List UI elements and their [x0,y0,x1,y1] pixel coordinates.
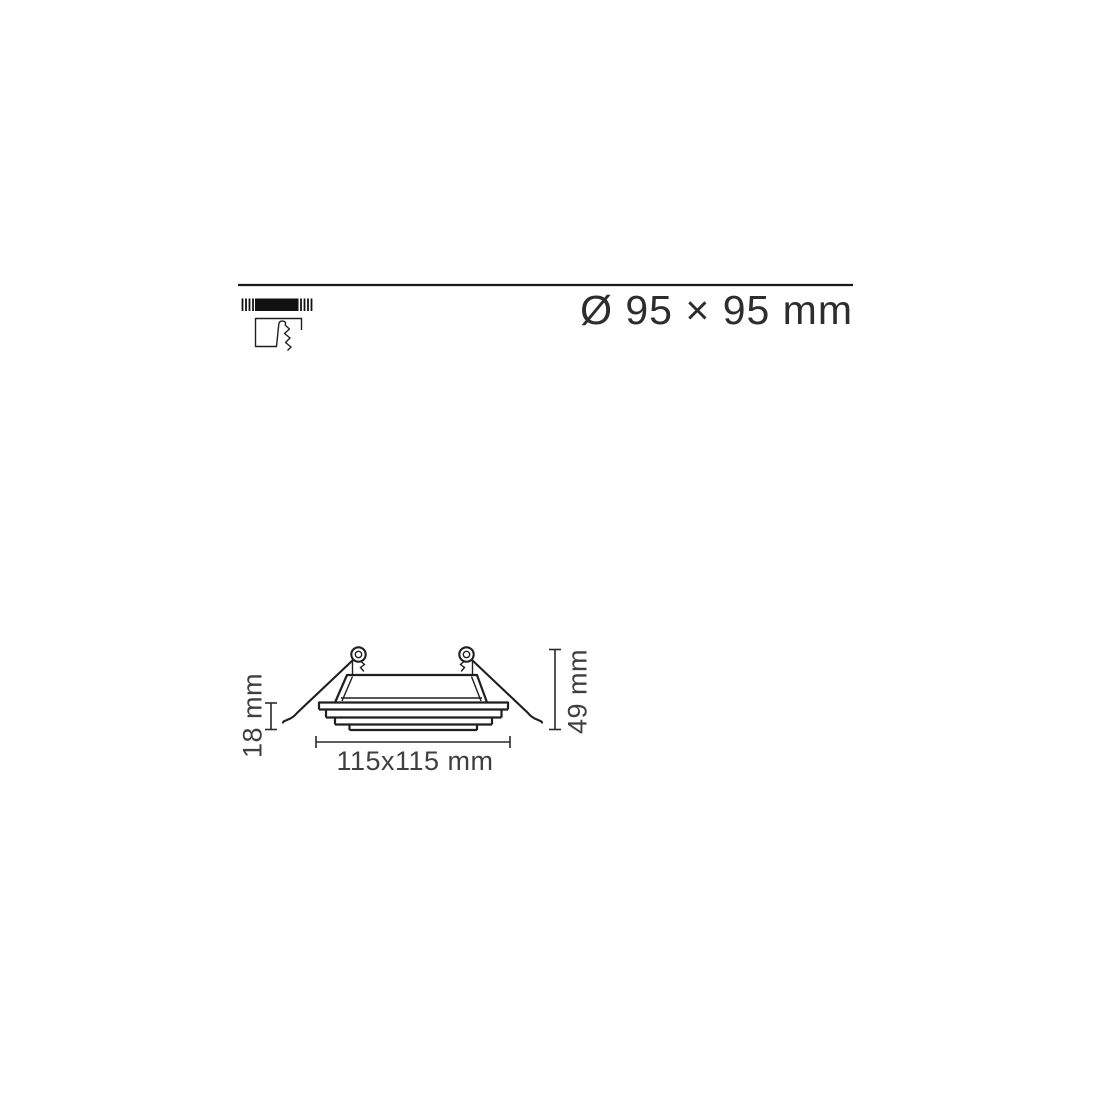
cutout-profile-path [256,319,302,347]
cutout-size-label: Ø 95 × 95 mm [580,287,853,333]
flange-step4 [335,725,492,731]
recessed-cutout-icon [256,319,302,351]
dim-flange-height-label: 18 mm [238,673,268,758]
spring-clip-left-icon [283,647,366,722]
ceiling-hatch-stripes-right [301,299,312,312]
ceiling-hatch-icon [243,299,312,312]
fixture-body [335,675,487,703]
spring-right-hook [461,662,465,672]
spring-left-coil-inner [355,651,361,657]
cutout-spring-zigzag [285,325,292,351]
dimension-flange-height: 18 mm [238,673,278,758]
dimension-total-height: 49 mm [549,649,593,734]
dimension-diagram-svg: Ø 95 × 95 mm [0,0,1100,1100]
spring-right-coil-inner [463,651,469,657]
ceiling-hatch-solid [255,299,299,312]
dim-total-height-label: 49 mm [563,649,593,734]
spring-left-hook [361,662,365,672]
spring-left-arm [283,660,353,723]
ceiling-hatch-stripes-left [243,299,254,312]
dimension-overall-width: 115x115 mm [316,736,510,776]
product-dimension-sheet: Ø 95 × 95 mm [0,0,1100,1100]
flange-step2 [319,710,508,718]
dim-width-label: 115x115 mm [336,746,493,776]
fixture-drawing: 49 mm 18 mm 115x115 mm [238,647,593,776]
fixture-flange-steps [319,703,508,731]
